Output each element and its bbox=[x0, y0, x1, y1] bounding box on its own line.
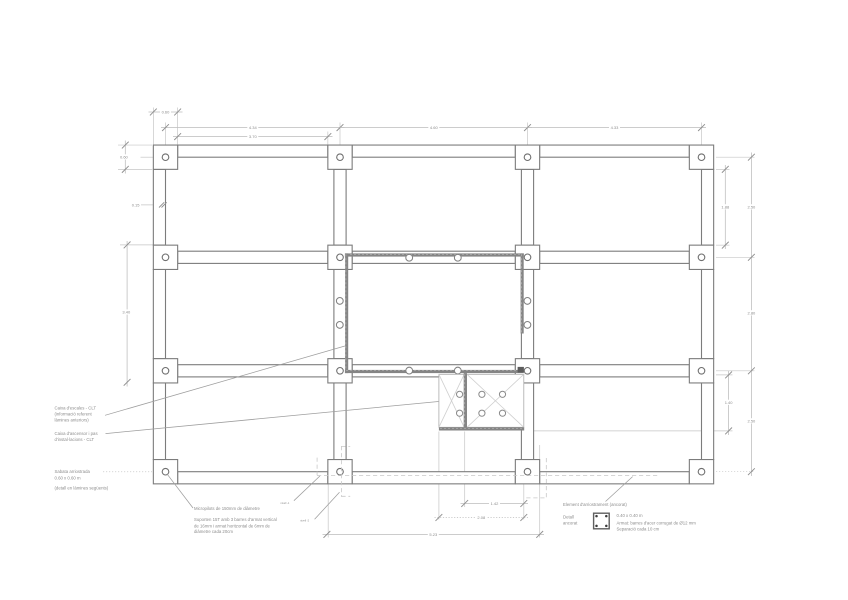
svg-text:Element d'arriostrament (ancor: Element d'arriostrament (ancorat) bbox=[563, 502, 627, 507]
svg-text:Caixa d'escales - CLT: Caixa d'escales - CLT bbox=[55, 405, 97, 410]
svg-text:de 16mm i armat horitzontal de: de 16mm i armat horitzontal de 6mm de bbox=[194, 523, 271, 528]
svg-text:3.40: 3.40 bbox=[122, 310, 131, 315]
svg-text:4.60: 4.60 bbox=[430, 125, 439, 130]
svg-text:Detall: Detall bbox=[563, 515, 574, 520]
svg-text:(detall en làmines següents): (detall en làmines següents) bbox=[55, 486, 109, 491]
svg-text:Armat: barres d'acer corrugat: Armat: barres d'acer corrugat de Ø12 mm bbox=[617, 520, 697, 525]
svg-text:2.50: 2.50 bbox=[748, 205, 757, 210]
svg-text:0.60 x 0.60 m: 0.60 x 0.60 m bbox=[55, 475, 81, 480]
svg-text:Caixa d'ascensor i pas: Caixa d'ascensor i pas bbox=[55, 431, 98, 436]
svg-text:1.40: 1.40 bbox=[725, 400, 734, 405]
svg-text:0.40 x 0.40 m: 0.40 x 0.40 m bbox=[617, 513, 643, 518]
svg-text:Sabata arriostrada: Sabata arriostrada bbox=[55, 469, 91, 474]
svg-text:Suporten 15T amb 3 barres d'ar: Suporten 15T amb 3 barres d'armat vertic… bbox=[194, 517, 277, 522]
svg-text:làmines anteriors): làmines anteriors) bbox=[55, 418, 90, 423]
svg-text:0.60: 0.60 bbox=[162, 110, 171, 115]
svg-text:diàmetre cada 20cm: diàmetre cada 20cm bbox=[194, 529, 233, 534]
svg-text:4.34: 4.34 bbox=[249, 125, 258, 130]
svg-text:nivell -1: nivell -1 bbox=[280, 501, 289, 505]
svg-text:1.42: 1.42 bbox=[491, 501, 500, 506]
svg-text:2.08: 2.08 bbox=[477, 515, 486, 520]
svg-text:2.80: 2.80 bbox=[748, 311, 757, 316]
svg-text:Micropilots de 150mm de diàmet: Micropilots de 150mm de diàmetre bbox=[194, 506, 261, 511]
svg-text:2.50: 2.50 bbox=[748, 419, 757, 424]
svg-text:3.70: 3.70 bbox=[249, 134, 258, 139]
svg-text:(informació referent: (informació referent bbox=[55, 411, 93, 416]
svg-text:5.23: 5.23 bbox=[429, 532, 438, 537]
svg-text:d'instal·lacions - CLT: d'instal·lacions - CLT bbox=[55, 437, 95, 442]
svg-text:ancorat: ancorat bbox=[563, 521, 578, 526]
svg-text:0.60: 0.60 bbox=[120, 155, 129, 160]
svg-text:nivell -2: nivell -2 bbox=[300, 518, 309, 522]
svg-text:4.33: 4.33 bbox=[611, 125, 620, 130]
svg-text:1.88: 1.88 bbox=[721, 205, 730, 210]
svg-text:Separació cada 10 cm: Separació cada 10 cm bbox=[617, 526, 660, 531]
svg-text:0.15: 0.15 bbox=[132, 202, 141, 207]
